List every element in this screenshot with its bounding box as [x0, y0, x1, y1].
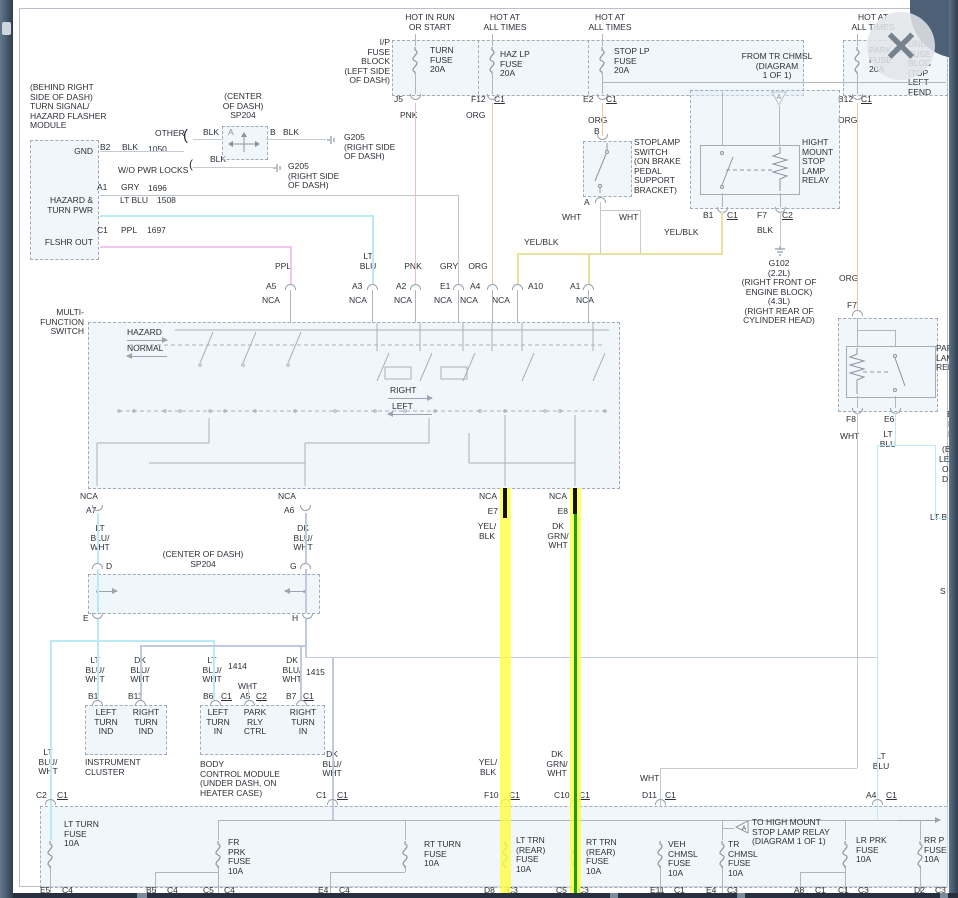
lt-turn-fuse-label: LT TURN FUSE 10A	[64, 820, 99, 849]
wire-blk-wopwr	[193, 167, 275, 168]
lr-prk-fuse-label: LR PRK FUSE 10A	[856, 836, 887, 865]
wire-c1c1-top	[332, 806, 334, 820]
wire-parkrelay-sw-stub	[895, 330, 896, 346]
wire-label-org-haz: ORG	[466, 111, 485, 121]
pin-a2: A2	[396, 282, 406, 292]
connector-c1-b1: C1	[727, 211, 738, 221]
wire-park-bot	[857, 74, 858, 94]
terminal-j5: J5	[394, 95, 403, 105]
wire-label-blk-b: BLK	[283, 128, 299, 138]
svg-text:A: A	[742, 825, 747, 832]
input-wire-gry: GRY	[440, 262, 458, 272]
wire-e7-core	[503, 488, 507, 518]
wire-label-yelblk-right: YEL/BLK	[664, 228, 699, 238]
stub-a4	[492, 290, 493, 322]
wire-label-dkgrnwht-bottom: DK GRN/ WHT	[546, 750, 567, 779]
sp204-mid-label: (CENTER OF DASH) SP204	[163, 550, 244, 569]
multifunction-switch-label: MULTI- FUNCTION SWITCH	[40, 308, 84, 337]
wire-wht-horiz	[660, 768, 857, 769]
ip-fuse-block-divider	[478, 40, 479, 94]
wire-ltblu-e6	[895, 413, 896, 445]
sp204-splice-arrows	[226, 130, 262, 154]
wire-gry-vert	[458, 195, 459, 284]
wire-ltbw-branch	[50, 640, 215, 642]
wire-ltbw-c2c1	[50, 640, 52, 806]
close-icon: ✕	[883, 22, 918, 71]
nca-a2: NCA	[394, 296, 412, 306]
wire-f8-stub	[857, 396, 858, 408]
brace-wo-pwr: (	[189, 160, 193, 170]
wire-h-down	[305, 619, 307, 657]
circuit-1414: 1414	[228, 662, 247, 672]
hm-relay-internals	[700, 145, 798, 193]
wire-rr-top	[920, 820, 921, 840]
output-wire-yelblk: YEL/ BLK	[478, 522, 496, 541]
instrument-cluster-title: INSTRUMENT CLUSTER	[85, 758, 141, 777]
wire-yelblk-b1	[721, 212, 723, 255]
bus-arrow-icon	[898, 820, 940, 821]
module-pin-gnd: GND	[74, 147, 93, 157]
lt-turn-fuse-icon	[45, 840, 55, 868]
terminal-f7-park: F7	[847, 301, 857, 311]
wire-label-ltblu-e6: LT BLU	[880, 430, 897, 449]
haz-lp-fuse-label: HAZ LP FUSE 20A	[500, 50, 530, 79]
stoplamp-switch-contact	[585, 143, 627, 193]
connector-c1-rtturn: C1	[337, 791, 348, 801]
terminal-b12: B12	[838, 95, 853, 105]
bcm-title: BODY CONTROL MODULE (UNDER DASH, ON HEAT…	[200, 760, 280, 798]
wire-label-yelblk-left: YEL/BLK	[524, 238, 559, 248]
wire-dkbw-c1c1	[332, 657, 334, 806]
nca-a7: NCA	[80, 492, 98, 502]
wire-tr-top	[722, 820, 723, 840]
bottom-bar	[13, 893, 958, 898]
wire-ltblu-1508-vert	[372, 215, 374, 284]
terminal-c1-rtturn: C1	[316, 791, 327, 801]
wire-label-ppl: PPL	[121, 226, 137, 236]
park-relay-internals	[846, 346, 934, 396]
splice-arrow-left-icon	[285, 591, 303, 592]
rt-turn-fuse-label: RT TURN FUSE 10A	[424, 840, 461, 869]
wire-label-ltbluwht-left: LT BLU/ WHT	[38, 748, 57, 777]
wire-label-blk-g102: BLK	[757, 226, 773, 236]
terminal-e6: E6	[884, 415, 894, 425]
ground-label-g102: G102 (2.2L) (RIGHT FRONT OF ENGINE BLOCK…	[742, 259, 817, 326]
wire-yelblk-a10	[517, 255, 519, 284]
wire-wht-a5-stub	[248, 685, 249, 700]
cluster-left-turn-ind: LEFT TURN IND	[94, 708, 118, 737]
stub-a1	[588, 290, 589, 322]
wire-d-e	[97, 569, 99, 613]
nca-a1: NCA	[576, 296, 594, 306]
wire-e-down	[97, 619, 99, 640]
wire-ltblu-right	[935, 445, 936, 518]
stub-a10	[517, 290, 518, 322]
ground-label-g205-2: G205 (RIGHT SIDE OF DASH)	[288, 162, 339, 191]
wire-ppl-vert	[290, 246, 292, 284]
lt-trn-rear-fuse-label: LT TRN (REAR) FUSE 10A	[516, 836, 545, 874]
wire-label-wht-bottom: WHT	[640, 774, 659, 784]
block-arc-c2	[45, 799, 56, 805]
connector-c1-a4: C1	[886, 791, 897, 801]
wire-ltbw-b6	[213, 640, 215, 700]
terminal-f8: F8	[846, 415, 856, 425]
wire-org-haz	[492, 103, 493, 284]
wire-stop-bus-right	[602, 82, 946, 83]
circuit-1050: 1050	[148, 145, 167, 155]
turn-fuse-icon	[410, 46, 420, 74]
wire-relay-top-stub	[722, 92, 723, 145]
connector-c1-ltturn: C1	[57, 791, 68, 801]
ip-fuse-block-label: I/P FUSE BLOCK (LEFT SIDE OF DASH)	[344, 38, 390, 86]
terminal-c10: C10	[554, 791, 570, 801]
bcm-right-turn-in: RIGHT TURN IN	[290, 708, 316, 737]
nca-a6: NCA	[278, 492, 296, 502]
wire-wht-b	[640, 210, 641, 253]
wire-label-yelblk-bottom: YEL/ BLK	[479, 758, 497, 777]
brace-other: (	[183, 131, 188, 141]
connector-c1-d11: C1	[665, 791, 676, 801]
to-high-mount-note: TO HIGH MOUNT STOP LAMP RELAY (DIAGRAM 1…	[752, 818, 830, 847]
ground-label-g205-1: G205 (RIGHT SIDE OF DASH)	[344, 133, 395, 162]
wire-label-org-relay: ORG	[839, 274, 858, 284]
lr-prk-fuse-icon	[840, 840, 850, 868]
terminal-g: G	[290, 562, 297, 572]
right-window-edge	[949, 0, 958, 898]
wire-haz-top	[492, 34, 493, 46]
circuit-1696: 1696	[148, 184, 167, 194]
wire-org-park	[857, 103, 858, 310]
wire-ltturn-top	[50, 806, 52, 840]
wire-park-top	[857, 34, 858, 46]
wire-dkbw-branch	[140, 645, 305, 647]
terminal-a-stoplamp: A	[584, 198, 590, 208]
output-wire-dkgrnwht: DK GRN/ WHT	[547, 522, 568, 551]
terminal-d: D	[106, 562, 112, 572]
terminal-b1: B1	[703, 211, 713, 221]
wiring-diagram-viewer: HOT IN RUN OR START HOT AT ALL TIMES HOT…	[0, 0, 958, 898]
nca-a10: NCA	[492, 296, 510, 306]
cluster-wire-left: LT BLU/ WHT	[85, 656, 104, 685]
nca-e1: NCA	[434, 296, 452, 306]
nca-e7: NCA	[479, 492, 497, 502]
wire-pnk	[415, 103, 416, 284]
wire-parkrelay-node	[857, 330, 895, 331]
wire-rtturn-top	[405, 820, 406, 840]
input-wire-org: ORG	[468, 262, 487, 272]
wire-haz-bot	[492, 74, 493, 94]
power-header-hot-1: HOT AT ALL TIMES	[484, 13, 527, 32]
pin-a5: A5	[266, 282, 276, 292]
block-arc-d11	[655, 799, 666, 805]
ip-fuse-block-divider2	[588, 40, 589, 94]
bottom-bar-separator-1	[137, 893, 147, 898]
wire-dkgrn-core	[574, 514, 577, 893]
block-arc-c1	[327, 799, 338, 805]
wire-dkbw-b11	[140, 647, 142, 700]
wire-label-blk-a: BLK	[203, 128, 219, 138]
wire-org-stop	[602, 103, 603, 136]
terminal-b-sp204: B	[270, 128, 276, 138]
sp204-top-label: (CENTER OF DASH) SP204	[223, 92, 264, 121]
block-arc-a4	[872, 799, 883, 805]
wire-lr-top	[845, 820, 846, 840]
rt-trn-rear-fuse-label: RT TRN (REAR) FUSE 10A	[586, 838, 617, 876]
bcm-wire-left: LT BLU/ WHT	[202, 656, 221, 685]
cluster-right-turn-ind: RIGHT TURN IND	[133, 708, 159, 737]
flasher-module-location-label: (BEHIND RIGHT SIDE OF DASH) TURN SIGNAL/…	[30, 83, 107, 131]
terminal-c2-block: C2	[36, 791, 47, 801]
wire-blk-sp204a-in	[193, 139, 222, 140]
wire-label-ltblu-bottom: LT BLU	[873, 752, 890, 771]
wire-lr-jog	[800, 872, 845, 873]
option-wo-pwr-locks: W/O PWR LOCKS	[118, 166, 188, 176]
connector-c2-a5: C2	[256, 692, 267, 702]
rt-turn-fuse-icon	[400, 840, 410, 868]
rr-prk-fuse-label: RR P FUSE 10A	[924, 836, 947, 865]
wire-tri-link	[722, 828, 734, 829]
edge-fragment-8: S	[940, 587, 946, 597]
wire-ltblu-a4	[877, 445, 878, 806]
circuit-1697: 1697	[147, 226, 166, 236]
veh-chmsl-fuse-label: VEH CHMSL FUSE 10A	[668, 840, 698, 878]
ground-icon-g205-2	[273, 163, 283, 175]
nca-e8: NCA	[549, 492, 567, 502]
terminal-e2: E2	[583, 95, 593, 105]
nca-a3: NCA	[349, 296, 367, 306]
terminal-e: E	[83, 614, 89, 624]
wire-parkrelay-top-stub	[857, 318, 858, 346]
stub-e1	[458, 290, 459, 322]
pin-a1: A1	[570, 282, 580, 292]
wire-a6-g	[305, 513, 307, 563]
wire-e4-drop	[330, 872, 331, 893]
bottom-bar-separator-4	[940, 893, 948, 898]
terminal-h: H	[292, 614, 298, 624]
terminal-b7: B7	[286, 692, 296, 702]
wire-ppl-horiz	[100, 246, 290, 248]
wire-yelblk-bus	[517, 253, 723, 255]
wire-dkbw-long	[305, 657, 877, 658]
output-wire-ltbluwht: LT BLU/ WHT	[90, 524, 109, 553]
input-wire-pnk: PNK	[404, 262, 421, 272]
veh-chmsl-fuse-icon	[655, 840, 665, 868]
wire-stop-top	[602, 34, 603, 46]
bcm-wire-right: DK BLU/ WHT	[282, 656, 301, 685]
wire-label-ltblu-1508: LT BLU	[120, 196, 148, 206]
haz-fuse-icon	[487, 46, 497, 74]
bottom-bar-separator-2	[610, 893, 618, 898]
terminal-arc-f7park	[852, 310, 863, 316]
splice-arrow-right-icon	[99, 591, 117, 592]
wire-stop-bot	[602, 74, 603, 94]
bcm-park-rly-ctrl: PARK RLY CTRL	[244, 708, 267, 737]
option-other: OTHER	[155, 129, 185, 139]
bcm-left-turn-in: LEFT TURN IN	[206, 708, 230, 737]
wire-frprk-bot	[218, 866, 219, 893]
terminal-f12: F12	[471, 95, 486, 105]
wire-e6-stub	[895, 396, 896, 408]
bottom-bar-separator-3	[737, 893, 745, 898]
stop-fuse-icon	[597, 46, 607, 74]
tr-chmsl-fuse-icon	[717, 840, 727, 868]
circuit-1415: 1415	[306, 668, 325, 678]
wire-yelblk-a1	[588, 255, 590, 284]
terminal-f10: F10	[484, 791, 499, 801]
wire-dkbw-b7	[300, 647, 302, 700]
pin-a4: A4	[470, 282, 480, 292]
pin-a6: A6	[284, 506, 294, 516]
wire-blk-b2	[100, 151, 184, 152]
wire-frprk-top	[218, 820, 219, 840]
terminal-c1-module: C1	[97, 226, 108, 236]
fr-prk-fuse-label: FR PRK FUSE 10A	[228, 838, 251, 876]
hm-relay-label: HIGHT MOUNT STOP LAMP RELAY	[802, 138, 833, 186]
wire-turn-bot	[415, 74, 416, 94]
connector-c1-b6: C1	[221, 692, 232, 702]
stub-a2	[415, 290, 416, 322]
wire-a4-into-bus	[877, 806, 878, 820]
wire-label-gry: GRY	[121, 183, 139, 193]
wire-label-wht-1: WHT	[562, 213, 581, 223]
input-wire-ppl: PPL	[275, 262, 291, 272]
wire-gry-horiz	[100, 195, 458, 196]
close-button[interactable]: ✕	[867, 12, 935, 80]
pin-a3: A3	[352, 282, 362, 292]
stoplamp-switch-label: STOPLAMP SWITCH (ON BRAKE PEDAL SUPPORT …	[634, 138, 681, 195]
pin-e8: E8	[558, 507, 568, 517]
multifunction-switch-internals	[89, 323, 617, 486]
wire-blk-sp204a-out	[266, 139, 326, 140]
circuit-1508: 1508	[157, 196, 176, 206]
output-wire-dkbluwht: DK BLU/ WHT	[293, 524, 312, 553]
wire-tr-bot	[722, 866, 723, 893]
terminal-a1: A1	[97, 183, 107, 193]
wire-wht-jog	[600, 210, 640, 211]
wire-label-wht-2: WHT	[619, 213, 638, 223]
left-window-edge	[0, 0, 13, 898]
pin-e1: E1	[440, 282, 450, 292]
turn-fuse-label: TURN FUSE 20A	[430, 46, 454, 75]
from-tr-chmsl-note: FROM TR CHMSL (DIAGRAM 1 OF 1)	[742, 52, 813, 81]
pin-a10: A10	[528, 282, 543, 292]
wire-e8-core	[573, 488, 577, 514]
wire-wht-f8-long	[857, 413, 858, 768]
wire-blk-g102	[780, 212, 781, 246]
power-header-hot-2: HOT AT ALL TIMES	[589, 13, 632, 32]
stop-lp-fuse-label: STOP LP FUSE 20A	[614, 47, 650, 76]
wire-ltblu-1508-horiz	[100, 215, 372, 217]
wire-g-h	[305, 569, 307, 613]
wire-trchmsl-stub	[779, 106, 780, 145]
ground-icon-g102	[774, 246, 786, 256]
highlight-trace-yelblk	[500, 488, 511, 893]
connector-c2-f7: C2	[782, 211, 793, 221]
power-header-run-start: HOT IN RUN OR START	[405, 13, 454, 32]
wire-rtturn-jog	[330, 872, 405, 873]
wire-ltblu-horiz	[877, 445, 936, 446]
wire-f7hm-stub	[780, 193, 781, 207]
nca-a5: NCA	[262, 296, 280, 306]
triangle-connector-a-bottom: A	[734, 820, 749, 834]
nca-a4: NCA	[460, 296, 478, 306]
wire-label-org-stop: ORG	[588, 116, 607, 126]
fr-prk-fuse-icon	[213, 840, 223, 868]
wire-turn-top	[415, 34, 416, 46]
module-pin-hazard-turn-pwr: HAZARD & TURN PWR	[47, 196, 93, 215]
park-fuse-icon	[852, 46, 862, 74]
wire-ltbw-b1	[97, 640, 99, 700]
stub-a3	[372, 290, 373, 322]
module-pin-flshr-out: FLSHR OUT	[45, 238, 93, 248]
terminal-f7-hm: F7	[757, 211, 767, 221]
stub-a5	[290, 290, 291, 322]
wire-b1-stub	[722, 193, 723, 207]
wire-a7-d	[97, 513, 99, 563]
wire-label-org-park: ORG	[838, 116, 857, 126]
ground-icon-g205-1	[327, 135, 337, 147]
wire-frprk-jog	[155, 872, 218, 873]
terminal-d11: D11	[642, 791, 657, 801]
sp204-mid-box	[88, 574, 320, 614]
pin-e7: E7	[488, 507, 498, 517]
window-control-icon[interactable]	[2, 22, 11, 35]
